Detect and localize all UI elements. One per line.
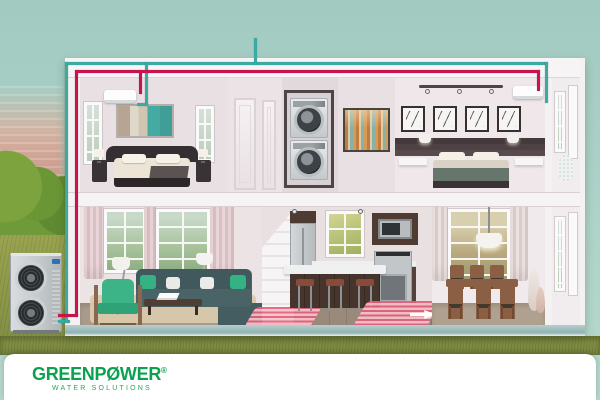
living-room [80,207,262,325]
outer-wall-right [580,58,585,325]
wall-art-abstract [116,104,174,138]
coffee-table-top [144,299,202,306]
brand-wordmark: GREENPØWER® [32,361,172,384]
curtain [84,207,104,279]
hallway [228,78,282,192]
lower-right-nook [552,207,580,325]
house-cutaway [65,58,585,336]
door [262,100,276,190]
pillow [200,277,214,289]
hot-pipe [139,70,142,94]
wall-art-autumn-trees [343,108,390,152]
art-wall [338,78,395,192]
unit-base [13,330,59,334]
promo-scene: GREENPØWER® WATER SOLUTIONS [0,0,600,400]
upper-right-nook [552,78,580,192]
bedroom-left [80,78,228,192]
heat-pump-outdoor-unit [10,253,62,332]
roof-band [65,58,585,78]
framed-art [433,106,457,132]
dining-room [432,207,545,325]
window [555,92,565,152]
armchair [94,279,144,325]
bedroom-right [395,78,545,192]
cold-pipe [65,62,68,323]
grass-strip [0,336,600,355]
side-ledge [399,158,427,165]
cold-pipe [145,62,148,106]
dining-chair [476,285,491,319]
cold-pipe [545,62,548,103]
greenpower-logo: GREENPØWER® WATER SOLUTIONS [32,361,172,395]
laptop [156,293,179,300]
double-bed [110,146,194,188]
dining-chair [448,285,463,319]
framed-art [465,106,489,132]
window [569,213,577,295]
kitchen [262,207,432,325]
brand-tagline: WATER SOLUTIONS [52,385,172,392]
side-ledge [515,158,543,165]
pillow [166,277,180,289]
dryer [290,140,328,180]
spotlight [489,89,494,94]
track-light-bar [419,85,503,88]
hot-pipe [75,70,540,73]
hot-pipe [75,70,78,317]
nightstand-with-lamp [92,160,107,182]
cold-pipe [137,103,148,106]
ac-indoor-unit-left [104,90,136,103]
coffee-table [144,299,202,315]
ceiling-spot [358,209,363,214]
island-countertop [284,265,386,274]
wall-sconce [507,134,519,143]
table-lamp [196,253,213,265]
blanket [433,168,509,182]
spotlight [457,89,462,94]
window [569,86,577,158]
decor-vase [558,154,574,182]
pillow [230,275,246,289]
curtain [510,207,528,281]
nightstand-with-lamp [196,160,211,182]
registered-mark: ® [161,366,167,375]
hot-pipe [537,70,540,91]
pendant-cord [488,207,490,233]
microwave [378,219,412,239]
curtain [432,207,448,281]
fan-grille [15,262,47,294]
floor-vase [536,287,545,313]
spotlight [425,89,430,94]
cold-pipe [58,320,70,323]
cold-pipe [65,62,548,65]
footer-card: GREENPØWER® WATER SOLUTIONS [4,354,596,400]
double-bed [431,152,511,188]
bar-stool [296,279,314,311]
bar-stool [326,279,344,311]
floor-slab [65,192,585,207]
fan-grille [15,297,47,329]
wall-sconce [419,134,431,143]
ceiling-spot [292,209,297,214]
door [234,98,256,190]
wall-divider [545,207,552,325]
dining-chair [500,285,515,319]
cold-pipe-riser [254,38,257,65]
framed-art [497,106,521,132]
laundry-closet [282,78,338,192]
armchair-wood-frame [94,285,142,325]
framed-art [401,106,425,132]
floor-lamp-shade [112,257,130,270]
window [555,217,565,291]
window [326,211,364,257]
pendant-lamp [476,233,502,248]
heat-pump-brand-badge [52,259,60,264]
bed-base [433,181,509,188]
washer [290,98,328,138]
bed-base [114,178,190,187]
foundation-band [65,325,585,336]
